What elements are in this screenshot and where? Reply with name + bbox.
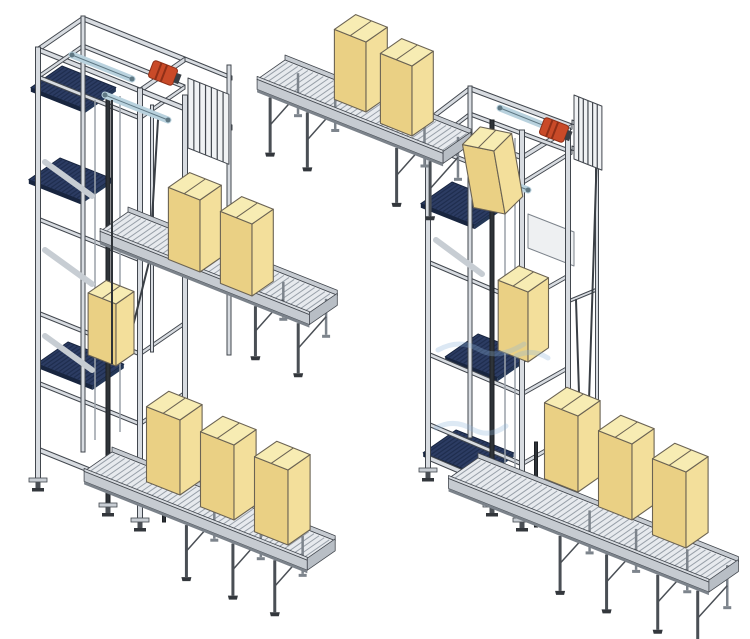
shaft-end: [130, 77, 135, 82]
base-foot: [486, 513, 498, 517]
base-stem: [138, 522, 143, 528]
foot-far: [294, 114, 302, 117]
shaft-end: [166, 118, 171, 123]
carton-box: [545, 387, 601, 492]
box-left-face: [168, 187, 200, 272]
box-left-face: [201, 432, 235, 520]
foot: [653, 630, 663, 634]
base-foot: [134, 528, 146, 532]
box-left-face: [545, 403, 579, 492]
box-left-face: [653, 459, 687, 548]
shaft-end: [70, 53, 75, 58]
box-left-face: [380, 53, 412, 136]
foot-far: [454, 178, 462, 181]
foot: [293, 373, 303, 377]
foot: [250, 356, 260, 360]
shaft-end: [103, 93, 108, 98]
box-left-face: [334, 29, 366, 112]
carton-box: [380, 39, 433, 136]
carton-box: [147, 391, 203, 495]
foot: [602, 609, 612, 613]
box-left-face: [255, 457, 289, 545]
box-left-face: [599, 431, 633, 520]
foot: [270, 612, 280, 616]
base-stem: [36, 482, 41, 488]
base-plate: [29, 478, 47, 482]
foot-far: [421, 165, 429, 168]
foot: [392, 203, 402, 207]
vertical-conveyor-isometric-diagram: [0, 0, 750, 639]
frame-column: [36, 47, 41, 480]
base-foot: [422, 478, 434, 482]
base-stem: [520, 522, 525, 528]
base-foot: [516, 528, 528, 532]
carton-box: [201, 416, 257, 520]
carton-box: [599, 415, 655, 520]
frame-column: [81, 16, 85, 452]
foot: [228, 596, 238, 600]
box-left-face: [220, 211, 252, 296]
base-foot: [32, 488, 44, 492]
foot: [555, 591, 565, 595]
diagram-page: [0, 0, 750, 639]
foot-far: [210, 539, 218, 542]
carton-box: [334, 15, 387, 112]
foot-far: [322, 335, 330, 338]
foot-far: [683, 590, 691, 593]
shaft-end: [526, 188, 531, 193]
carton-box: [653, 443, 709, 548]
foot: [302, 167, 312, 171]
base-stem: [426, 472, 431, 478]
foot-far: [723, 606, 731, 609]
carton-box: [498, 266, 548, 362]
base-stem: [106, 507, 111, 513]
base-plate: [99, 503, 117, 507]
foot: [181, 577, 191, 581]
foot-far: [632, 570, 640, 573]
shaft-end: [498, 106, 503, 111]
carton-box: [220, 197, 273, 296]
foot: [425, 216, 435, 220]
foot-far: [299, 574, 307, 577]
carton-box: [168, 173, 221, 272]
foot: [265, 153, 275, 157]
foot-far: [257, 557, 265, 560]
base-plate: [419, 468, 437, 472]
box-left-face: [147, 407, 181, 495]
base-plate: [131, 518, 149, 522]
foot-far: [586, 551, 594, 554]
carton-box: [255, 441, 311, 545]
foot-far: [331, 129, 339, 132]
base-foot: [102, 513, 114, 517]
